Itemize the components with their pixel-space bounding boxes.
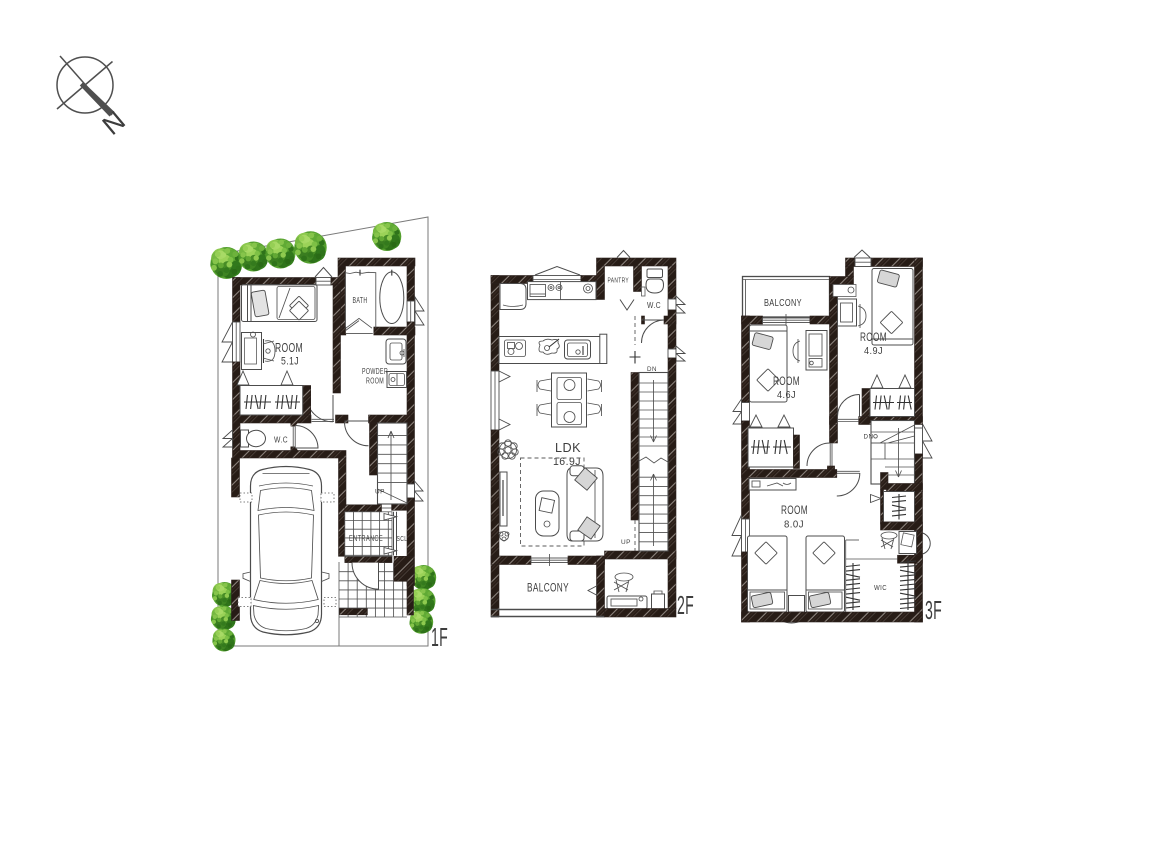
svg-text:5.1J: 5.1J	[281, 356, 299, 368]
svg-text:2F: 2F	[677, 590, 694, 620]
svg-text:BALCONY: BALCONY	[764, 297, 802, 309]
svg-text:BALCONY: BALCONY	[527, 583, 569, 595]
svg-text:WIC: WIC	[874, 583, 887, 592]
svg-text:3F: 3F	[925, 595, 942, 625]
svg-text:8.0J: 8.0J	[784, 519, 804, 531]
svg-text:4.9J: 4.9J	[864, 345, 883, 357]
svg-text:DN: DN	[647, 366, 657, 373]
svg-text:DN: DN	[864, 434, 874, 441]
svg-text:SCL: SCL	[397, 536, 408, 543]
svg-text:W.C: W.C	[274, 436, 288, 445]
svg-text:4.6J: 4.6J	[777, 389, 796, 401]
svg-text:UP: UP	[375, 489, 385, 496]
svg-text:1F: 1F	[431, 622, 448, 652]
svg-text:BATH: BATH	[353, 295, 368, 305]
svg-text:ROOM: ROOM	[860, 330, 887, 344]
svg-text:ROOM: ROOM	[275, 340, 303, 355]
svg-text:ROOM: ROOM	[366, 377, 384, 386]
svg-text:W.C: W.C	[647, 301, 661, 310]
svg-text:ROOM: ROOM	[773, 374, 800, 388]
svg-text:UP: UP	[621, 539, 631, 546]
svg-text:POWDER: POWDER	[362, 367, 388, 376]
svg-text:ENTRANCE: ENTRANCE	[349, 533, 383, 543]
svg-text:ROOM: ROOM	[781, 503, 808, 517]
svg-text:LDK: LDK	[555, 440, 581, 455]
svg-text:PANTRY: PANTRY	[608, 278, 630, 285]
